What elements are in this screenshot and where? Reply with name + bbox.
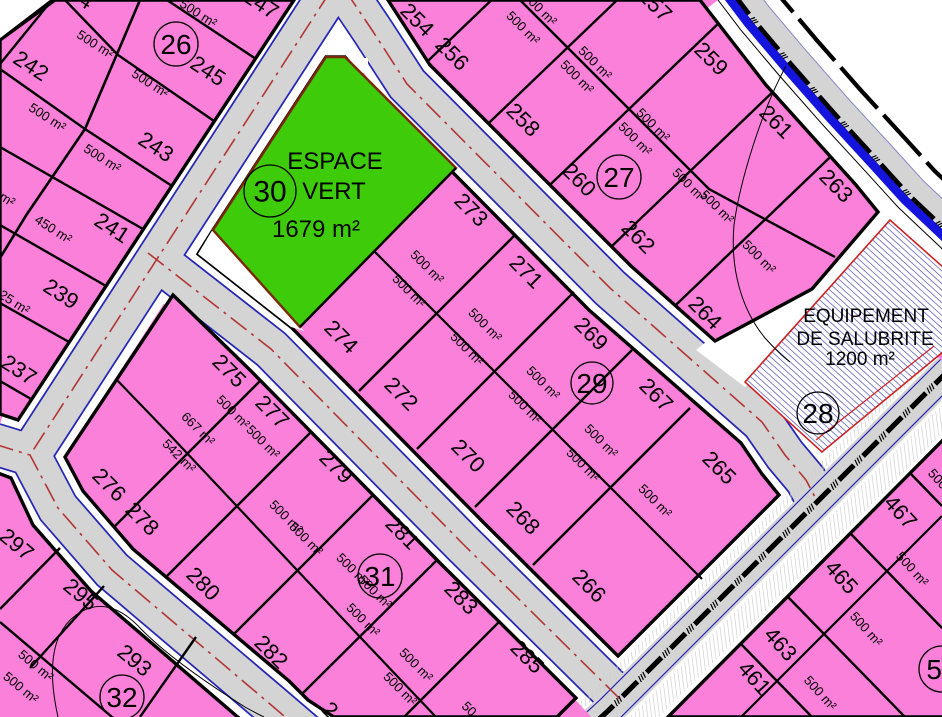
svg-text:51: 51: [926, 654, 942, 685]
svg-text:1679 m²: 1679 m²: [272, 216, 360, 243]
svg-text:32: 32: [106, 682, 137, 713]
svg-text:30: 30: [253, 176, 286, 209]
svg-text:EQUIPEMENT: EQUIPEMENT: [803, 306, 929, 327]
svg-text:28: 28: [802, 398, 833, 429]
svg-text:VERT: VERT: [302, 178, 366, 205]
svg-text:26: 26: [160, 29, 191, 60]
svg-text:DE SALUBRITE: DE SALUBRITE: [796, 329, 933, 350]
svg-text:1200 m²: 1200 m²: [825, 349, 895, 370]
svg-text:ESPACE: ESPACE: [287, 148, 383, 175]
svg-text:31: 31: [364, 561, 395, 592]
svg-text:29: 29: [576, 368, 607, 399]
svg-text:27: 27: [603, 162, 634, 193]
